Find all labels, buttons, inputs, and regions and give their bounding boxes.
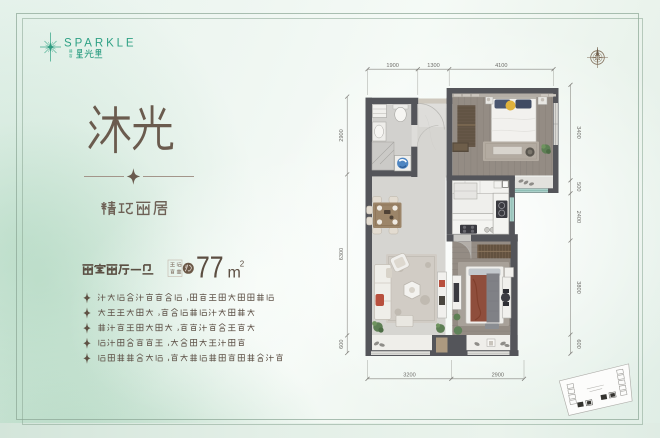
svg-text:500: 500 [575, 182, 581, 191]
svg-text:600: 600 [339, 340, 345, 349]
svg-text:1900: 1900 [386, 63, 398, 69]
svg-text:3800: 3800 [575, 281, 581, 293]
svg-text:3400: 3400 [575, 126, 581, 138]
svg-text:1300: 1300 [427, 63, 439, 69]
svg-text:2400: 2400 [575, 211, 581, 223]
svg-text:4100: 4100 [495, 63, 507, 69]
svg-text:2900: 2900 [339, 129, 345, 141]
svg-text:2: 2 [240, 259, 245, 268]
svg-text:6300: 6300 [339, 248, 345, 260]
svg-text:2900: 2900 [492, 372, 504, 378]
svg-text:600: 600 [575, 339, 581, 348]
svg-text:3200: 3200 [403, 372, 415, 378]
svg-text:77: 77 [196, 250, 224, 284]
svg-text:SPARKLE: SPARKLE [64, 38, 137, 50]
